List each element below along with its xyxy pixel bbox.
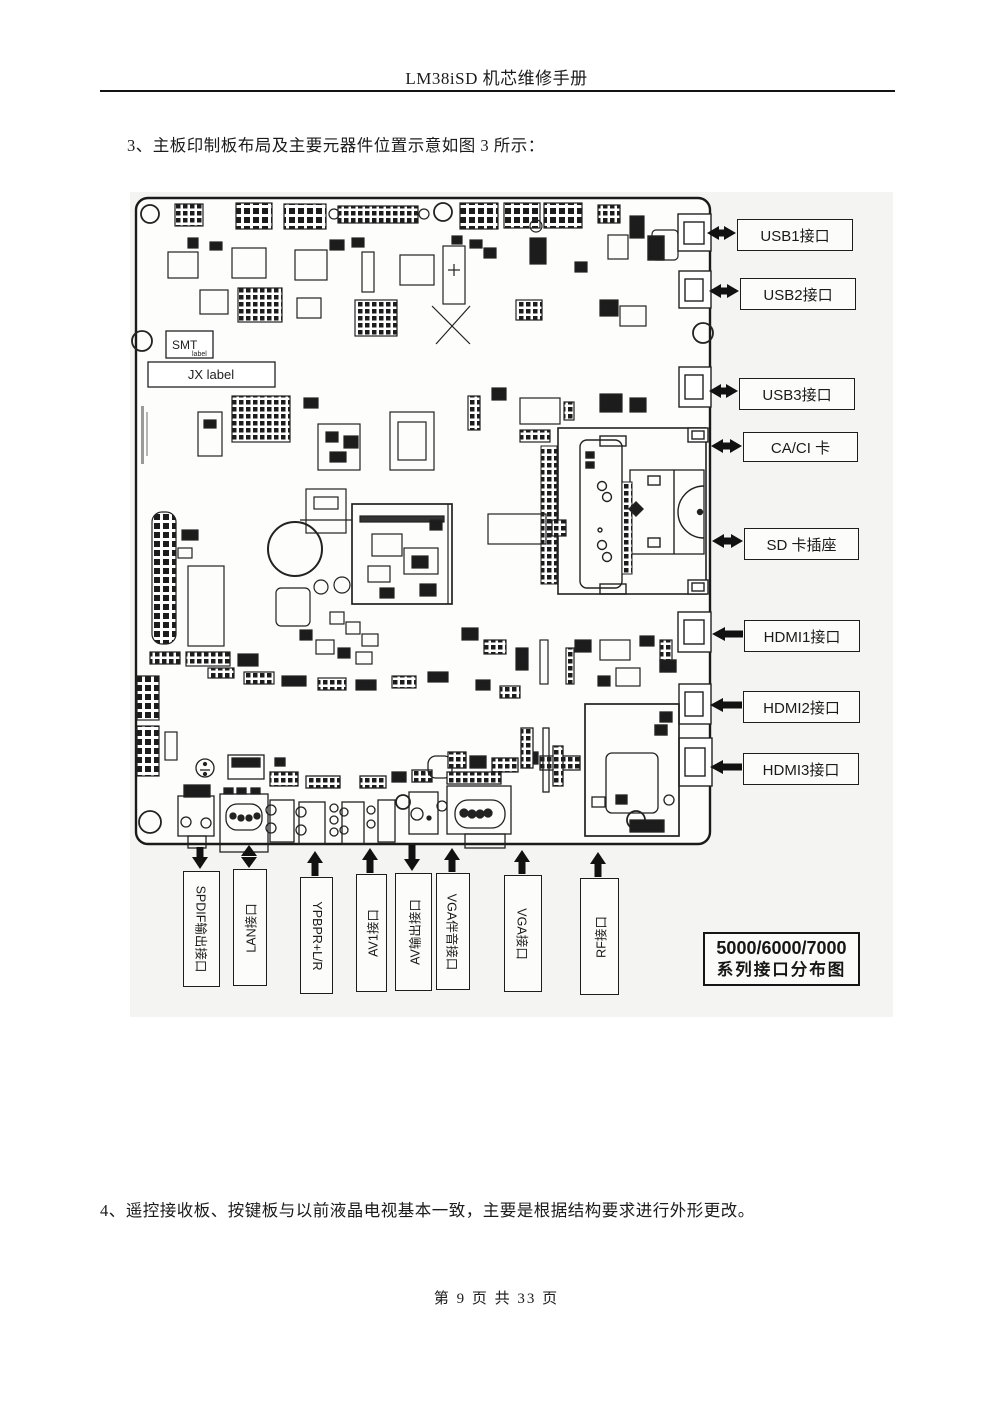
callout-usb1-label: USB1接口 <box>760 225 829 246</box>
callout-vga-audio: VGA伴音接口 <box>436 873 470 990</box>
arrow-vga-audio <box>444 848 460 872</box>
callout-av-out-label: AV输出接口 <box>404 899 423 965</box>
callout-sd: SD 卡插座 <box>744 528 859 560</box>
arrow-hdmi1 <box>712 627 743 641</box>
arrow-rf <box>590 852 606 877</box>
arrow-usb3 <box>709 384 738 398</box>
arrow-av1 <box>362 848 378 873</box>
series-box-line1: 5000/6000/7000 <box>716 937 846 960</box>
arrow-usb2 <box>709 284 739 298</box>
arrow-ypbpr <box>307 851 323 876</box>
callout-usb3-label: USB3接口 <box>762 384 831 405</box>
callout-sd-label: SD 卡插座 <box>766 534 836 555</box>
figure-pcb-layout: SMT label JX label <box>130 192 893 1017</box>
callout-hdmi2-label: HDMI2接口 <box>763 697 840 718</box>
callout-av1-label: AV1接口 <box>362 909 381 957</box>
callout-caci: CA/CI 卡 <box>743 432 858 462</box>
callout-ypbpr: YPBPR+L/R <box>300 877 333 994</box>
smt-label-text: SMT <box>172 338 198 352</box>
callout-vga-label: VGA接口 <box>514 908 533 959</box>
arrow-lan <box>241 845 257 868</box>
callout-spdif-label: SPDIF输出接口 <box>192 886 211 973</box>
header-rule <box>100 90 895 92</box>
callout-hdmi3-label: HDMI3接口 <box>763 759 840 780</box>
page-header-title: LM38iSD 机芯维修手册 <box>0 64 993 89</box>
series-distribution-box: 5000/6000/7000 系列接口分布图 <box>703 932 860 986</box>
jx-label-text: JX label <box>188 367 234 382</box>
callout-hdmi1-label: HDMI1接口 <box>764 626 841 647</box>
page-footer: 第 9 页 共 33 页 <box>0 1287 993 1308</box>
callout-usb2: USB2接口 <box>740 278 856 310</box>
callout-vga-audio-label: VGA伴音接口 <box>444 893 463 969</box>
callout-usb1: USB1接口 <box>737 219 853 251</box>
callout-ypbpr-label: YPBPR+L/R <box>310 901 324 970</box>
smt-sublabel-text: label <box>192 351 207 358</box>
callout-spdif: SPDIF输出接口 <box>183 871 220 987</box>
callout-caci-label: CA/CI 卡 <box>771 437 830 458</box>
arrow-sd <box>712 534 743 548</box>
paragraph-4: 4、遥控接收板、按键板与以前液晶电视基本一致，主要是根据结构要求进行外形更改。 <box>100 1197 920 1221</box>
callout-hdmi1: HDMI1接口 <box>744 620 860 652</box>
arrow-avout <box>404 845 420 871</box>
arrow-spdif <box>192 847 208 869</box>
callout-rf: RF接口 <box>580 878 619 995</box>
callout-lan: LAN接口 <box>233 869 267 986</box>
arrow-hdmi3 <box>710 760 742 774</box>
callout-lan-label: LAN接口 <box>241 903 260 952</box>
arrow-hdmi2 <box>710 698 742 712</box>
series-box-line2: 系列接口分布图 <box>717 960 847 981</box>
callout-av-out: AV输出接口 <box>395 873 432 991</box>
callout-usb2-label: USB2接口 <box>763 284 832 305</box>
callout-usb3: USB3接口 <box>739 378 855 410</box>
callout-av1: AV1接口 <box>356 874 387 992</box>
arrow-vga <box>514 850 530 874</box>
callout-vga: VGA接口 <box>504 875 542 992</box>
callout-hdmi3: HDMI3接口 <box>743 753 859 785</box>
paragraph-3: 3、主板印制板布局及主要元器件位置示意如图 3 所示： <box>127 132 827 156</box>
callout-rf-label: RF接口 <box>590 916 609 958</box>
arrow-caci <box>711 439 742 453</box>
callout-hdmi2: HDMI2接口 <box>743 691 860 723</box>
